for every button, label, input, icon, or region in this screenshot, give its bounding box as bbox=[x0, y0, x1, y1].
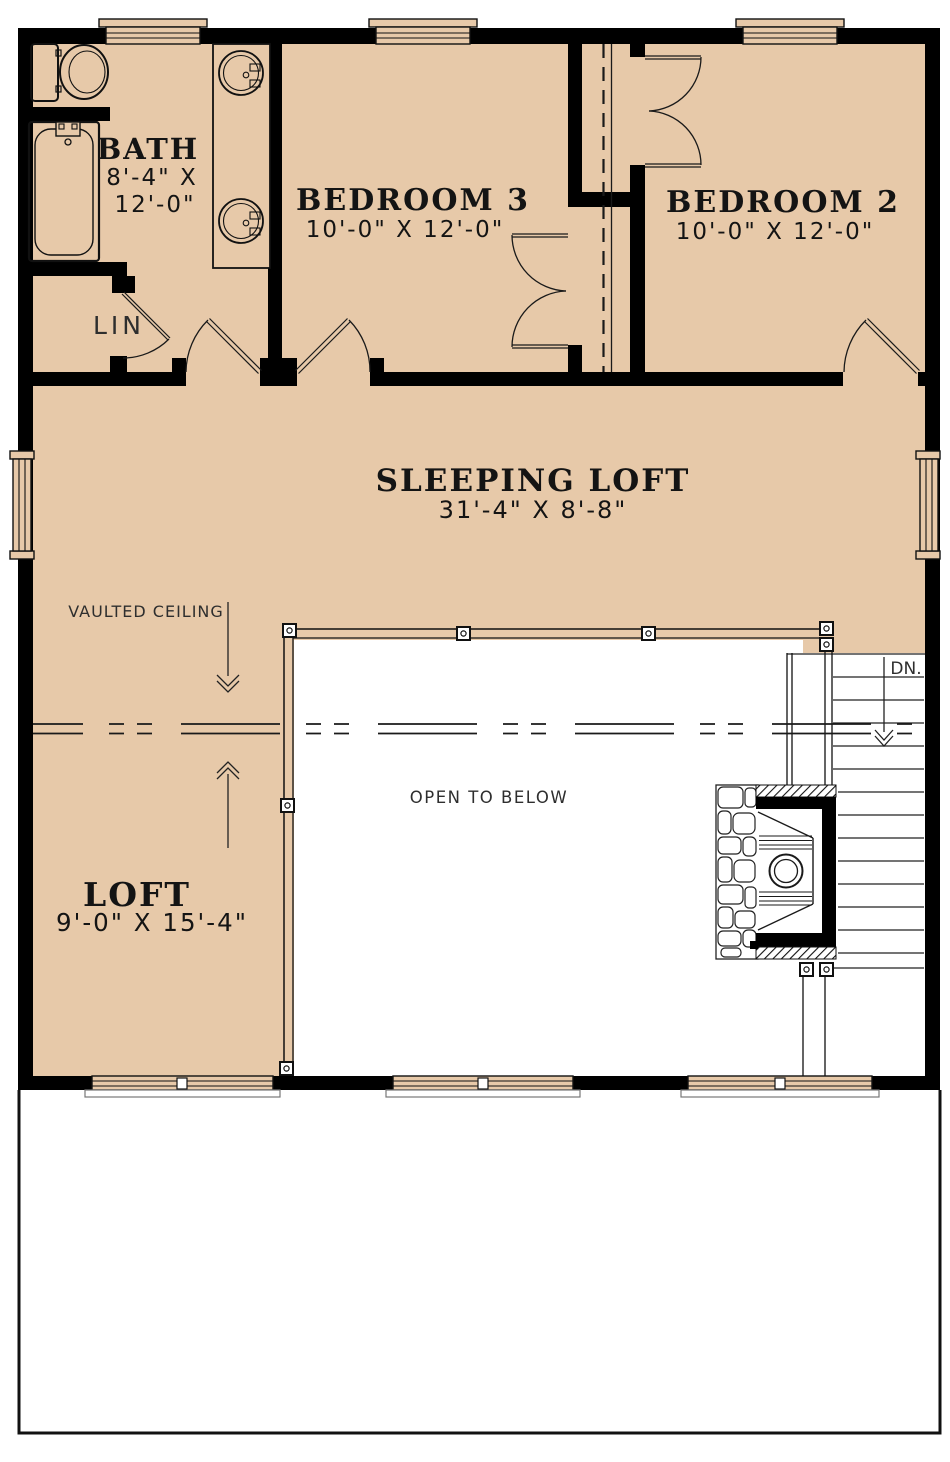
railing-post bbox=[280, 1062, 293, 1075]
bedroom3-closet-post bbox=[568, 345, 582, 372]
sleeping-loft-label: SLEEPING LOFT bbox=[376, 463, 691, 499]
fireplace-wall-top bbox=[756, 797, 836, 809]
linen-closet-label: LIN bbox=[93, 311, 145, 340]
railing-post bbox=[820, 963, 833, 976]
hall-wall-segment bbox=[370, 372, 843, 386]
bath-dimension-1: 8'-4" X bbox=[106, 165, 198, 191]
fireplace bbox=[716, 785, 836, 959]
bedroom3-closet-wall bbox=[568, 44, 582, 207]
floor-plan-drawing: BATH 8'-4" X 12'-0" BEDROOM 3 10'-0" X 1… bbox=[0, 0, 950, 1462]
open-to-below-label: OPEN TO BELOW bbox=[410, 788, 568, 807]
bedroom2-dimension: 10'-0" X 12'-0" bbox=[676, 219, 875, 245]
window-bedroom2 bbox=[736, 19, 844, 44]
railing-post bbox=[457, 627, 470, 640]
vaulted-ceiling-label: VAULTED CEILING bbox=[68, 602, 224, 621]
tub-wall bbox=[18, 262, 127, 276]
bedroom3-label: BEDROOM 3 bbox=[296, 183, 530, 218]
bath-dimension-2: 12'-0" bbox=[114, 192, 195, 218]
fireplace-hatch-top bbox=[756, 785, 836, 797]
bedroom2-closet-stub bbox=[630, 44, 645, 57]
window-bedroom3 bbox=[369, 19, 477, 44]
door-jamb-post bbox=[172, 358, 186, 386]
railing-post bbox=[820, 638, 833, 651]
railing-post bbox=[281, 799, 294, 812]
loft-dimension: 9'-0" X 15'-4" bbox=[56, 908, 248, 937]
railing-post bbox=[820, 622, 833, 635]
toilet-alcove-wall bbox=[18, 107, 110, 121]
window-left-wall bbox=[10, 451, 34, 559]
stairs-down-label: DN. bbox=[890, 659, 921, 679]
window-right-wall bbox=[916, 451, 940, 559]
vanity-double-sink bbox=[213, 44, 270, 268]
bedroom3-dimension: 10'-0" X 12'-0" bbox=[306, 217, 505, 243]
floor-plan-page: BATH 8'-4" X 12'-0" BEDROOM 3 10'-0" X 1… bbox=[0, 0, 950, 1462]
window-openbelow-bottom bbox=[386, 1076, 580, 1097]
window-stair-bottom bbox=[681, 1076, 879, 1097]
bath-label: BATH bbox=[97, 132, 199, 166]
bedroom2-label: BEDROOM 2 bbox=[666, 185, 900, 220]
window-loft-bottom bbox=[85, 1076, 280, 1097]
sleeping-loft-dimension: 31'-4" X 8'-8" bbox=[439, 496, 628, 524]
door-jamb-post bbox=[370, 358, 384, 386]
railing-post bbox=[800, 963, 813, 976]
railing-post bbox=[642, 627, 655, 640]
hall-wall-segment bbox=[18, 372, 186, 386]
hall-wall-segment bbox=[918, 372, 925, 386]
linen-door-post bbox=[112, 276, 135, 293]
fireplace-wall-bottom bbox=[756, 933, 836, 947]
fireplace-hatch-bottom bbox=[756, 947, 836, 959]
railing-post bbox=[283, 624, 296, 637]
window-bath bbox=[99, 19, 207, 44]
fireplace-wall-right bbox=[822, 809, 836, 933]
bedroom2-closet-wall bbox=[630, 165, 645, 386]
